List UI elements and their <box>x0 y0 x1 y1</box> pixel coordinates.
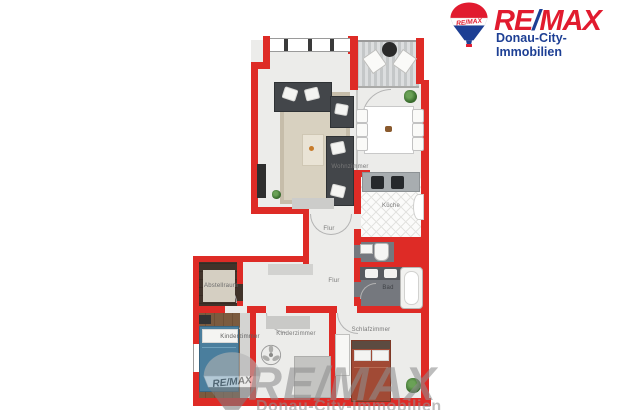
watermark-subtitle: Donau-City-Immobilien <box>256 398 442 410</box>
bathtub-inner <box>404 271 419 305</box>
wall-segment <box>350 36 358 90</box>
dining-chair <box>356 123 368 137</box>
room-label-wohnzimmer: Wohnzimmer <box>331 164 368 170</box>
plant-icon <box>272 190 281 199</box>
window-mullion <box>330 39 334 51</box>
sofa-top <box>274 82 332 112</box>
kitchen-sink <box>391 176 404 189</box>
wc-sink <box>360 244 373 254</box>
room-label-flur-oben: Flur <box>323 226 334 232</box>
wall-segment <box>193 256 307 262</box>
door-gap <box>225 306 247 313</box>
dining-chair <box>356 109 368 123</box>
sofa-pillow <box>281 86 298 102</box>
door-gap <box>266 306 286 313</box>
wall-segment <box>394 239 422 265</box>
room-label-kinderzimmer-links: Kinderzimmer <box>220 334 259 340</box>
room-label-kinderzimmer-mitte: Kinderzimmer <box>276 331 315 337</box>
wall-segment <box>416 38 424 84</box>
room-label-kueche: Küche <box>382 203 400 209</box>
cooktop <box>371 176 384 189</box>
plant-icon <box>404 90 417 103</box>
sofa-pillow <box>330 141 346 156</box>
doormat <box>292 198 334 209</box>
decor-bowl <box>309 146 314 151</box>
logo-subtitle: Donau-City-Immobilien <box>496 31 620 59</box>
balcony-door-sill <box>356 86 419 88</box>
balcony-table <box>382 42 397 57</box>
bed-headboard <box>352 341 390 349</box>
sofa-pillow <box>304 86 320 101</box>
sofa-pillow <box>334 103 349 116</box>
sofa-pillow <box>330 183 346 198</box>
dining-chair <box>412 123 424 137</box>
window-band <box>270 38 350 52</box>
nightstand <box>199 315 211 324</box>
room-label-schlafzimmer: Schlafzimmer <box>352 327 391 333</box>
sofa-right <box>326 136 354 206</box>
kitchen-niche <box>413 194 424 220</box>
room-label-abstellraum: Abstellraum <box>204 283 238 289</box>
dining-chair <box>356 137 368 151</box>
blanket-line <box>202 347 236 348</box>
tv-sideboard <box>257 164 266 198</box>
kitchen-counter <box>362 172 420 192</box>
dining-chair <box>412 137 424 151</box>
floorplan-page: Wohnzimmer Küche Flur Flur Bad Abstellra… <box>0 0 620 410</box>
remax-balloon-icon: RE/MAX <box>446 1 492 47</box>
bath-sink <box>384 269 397 278</box>
armchair <box>330 96 354 128</box>
bathtub <box>400 267 423 309</box>
window-mullion <box>308 39 312 51</box>
hall-rug <box>268 264 313 275</box>
dining-chair <box>412 109 424 123</box>
table-decor <box>385 126 392 132</box>
room-label-flur-unten: Flur <box>328 278 339 284</box>
bath-counter <box>360 267 402 280</box>
bath-sink <box>365 269 378 278</box>
room-label-bad: Bad <box>382 285 393 291</box>
window-mullion <box>284 39 288 51</box>
toilet <box>374 243 389 261</box>
room-rug <box>266 316 310 329</box>
door-gap <box>354 214 361 229</box>
door-gap <box>337 306 357 313</box>
dining-table <box>364 106 414 154</box>
